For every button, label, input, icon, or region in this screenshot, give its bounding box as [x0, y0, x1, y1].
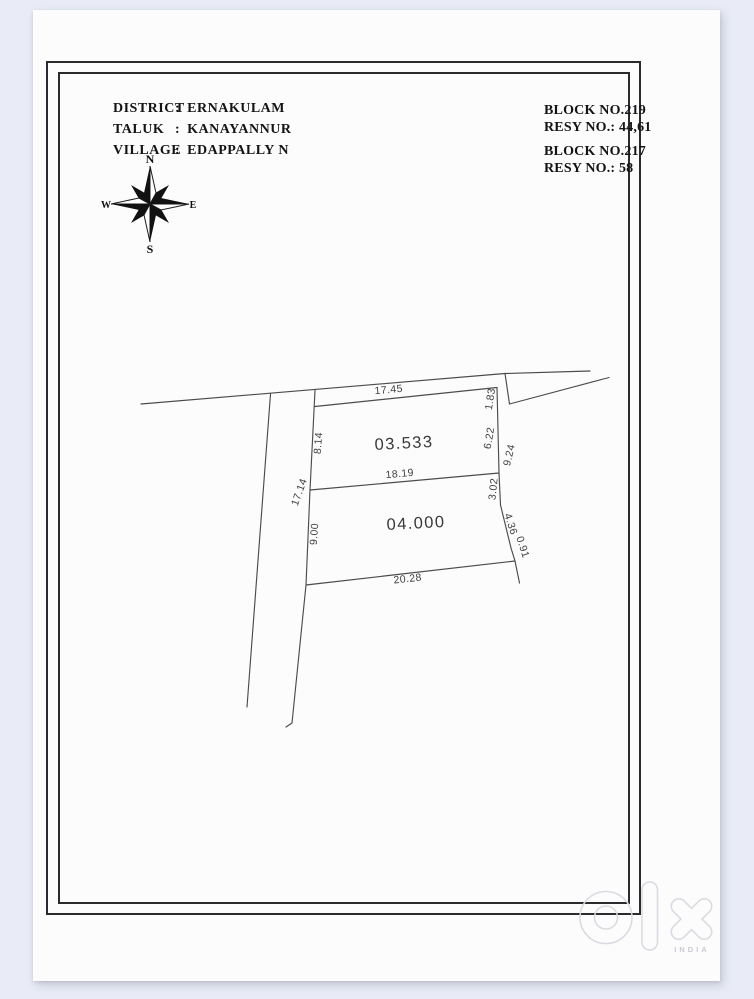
taluk-value: KANAYANNUR: [187, 122, 291, 137]
village-label: VILLAGE: [113, 140, 175, 161]
survey-ref-group-1: BLOCK NO.219 RESY NO.: 44,61: [544, 102, 652, 136]
taluk-label: TALUK: [113, 119, 175, 140]
district-label: DISTRICT: [113, 98, 175, 119]
inner-border-frame: [58, 72, 630, 904]
block-no-1: BLOCK NO.219: [544, 102, 652, 119]
block-no-2: BLOCK NO.217: [544, 143, 652, 160]
survey-references: BLOCK NO.219 RESY NO.: 44,61 BLOCK NO.21…: [544, 102, 652, 184]
village-colon: :: [175, 140, 180, 161]
district-row: DISTRICT:ERNAKULAM: [113, 98, 291, 119]
village-value: EDAPPALLY N: [187, 143, 289, 158]
scan-background: { "document": { "location": { "colon": "…: [0, 0, 754, 999]
survey-ref-group-2: BLOCK NO.217 RESY NO.: 58: [544, 143, 652, 177]
village-row: VILLAGE:EDAPPALLY N: [113, 140, 291, 161]
taluk-colon: :: [175, 119, 180, 140]
district-value: ERNAKULAM: [187, 101, 285, 116]
location-details: DISTRICT:ERNAKULAM TALUK:KANAYANNUR VILL…: [113, 98, 291, 161]
taluk-row: TALUK:KANAYANNUR: [113, 119, 291, 140]
district-colon: :: [175, 98, 180, 119]
resy-no-1: RESY NO.: 44,61: [544, 119, 652, 136]
resy-no-2: RESY NO.: 58: [544, 160, 652, 177]
